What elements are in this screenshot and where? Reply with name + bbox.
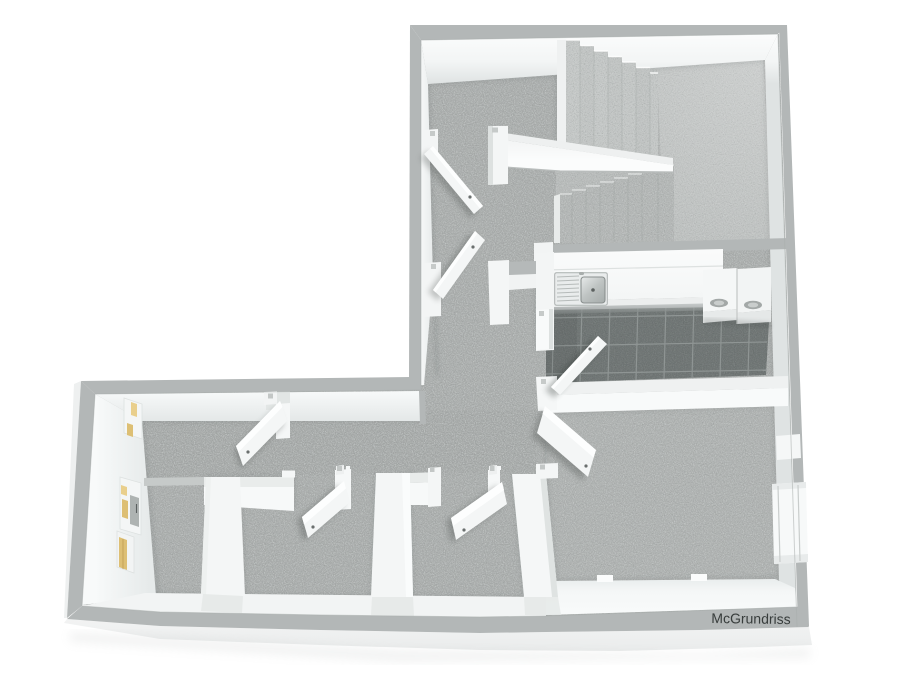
svg-text:McGrundriss: McGrundriss — [711, 610, 791, 627]
